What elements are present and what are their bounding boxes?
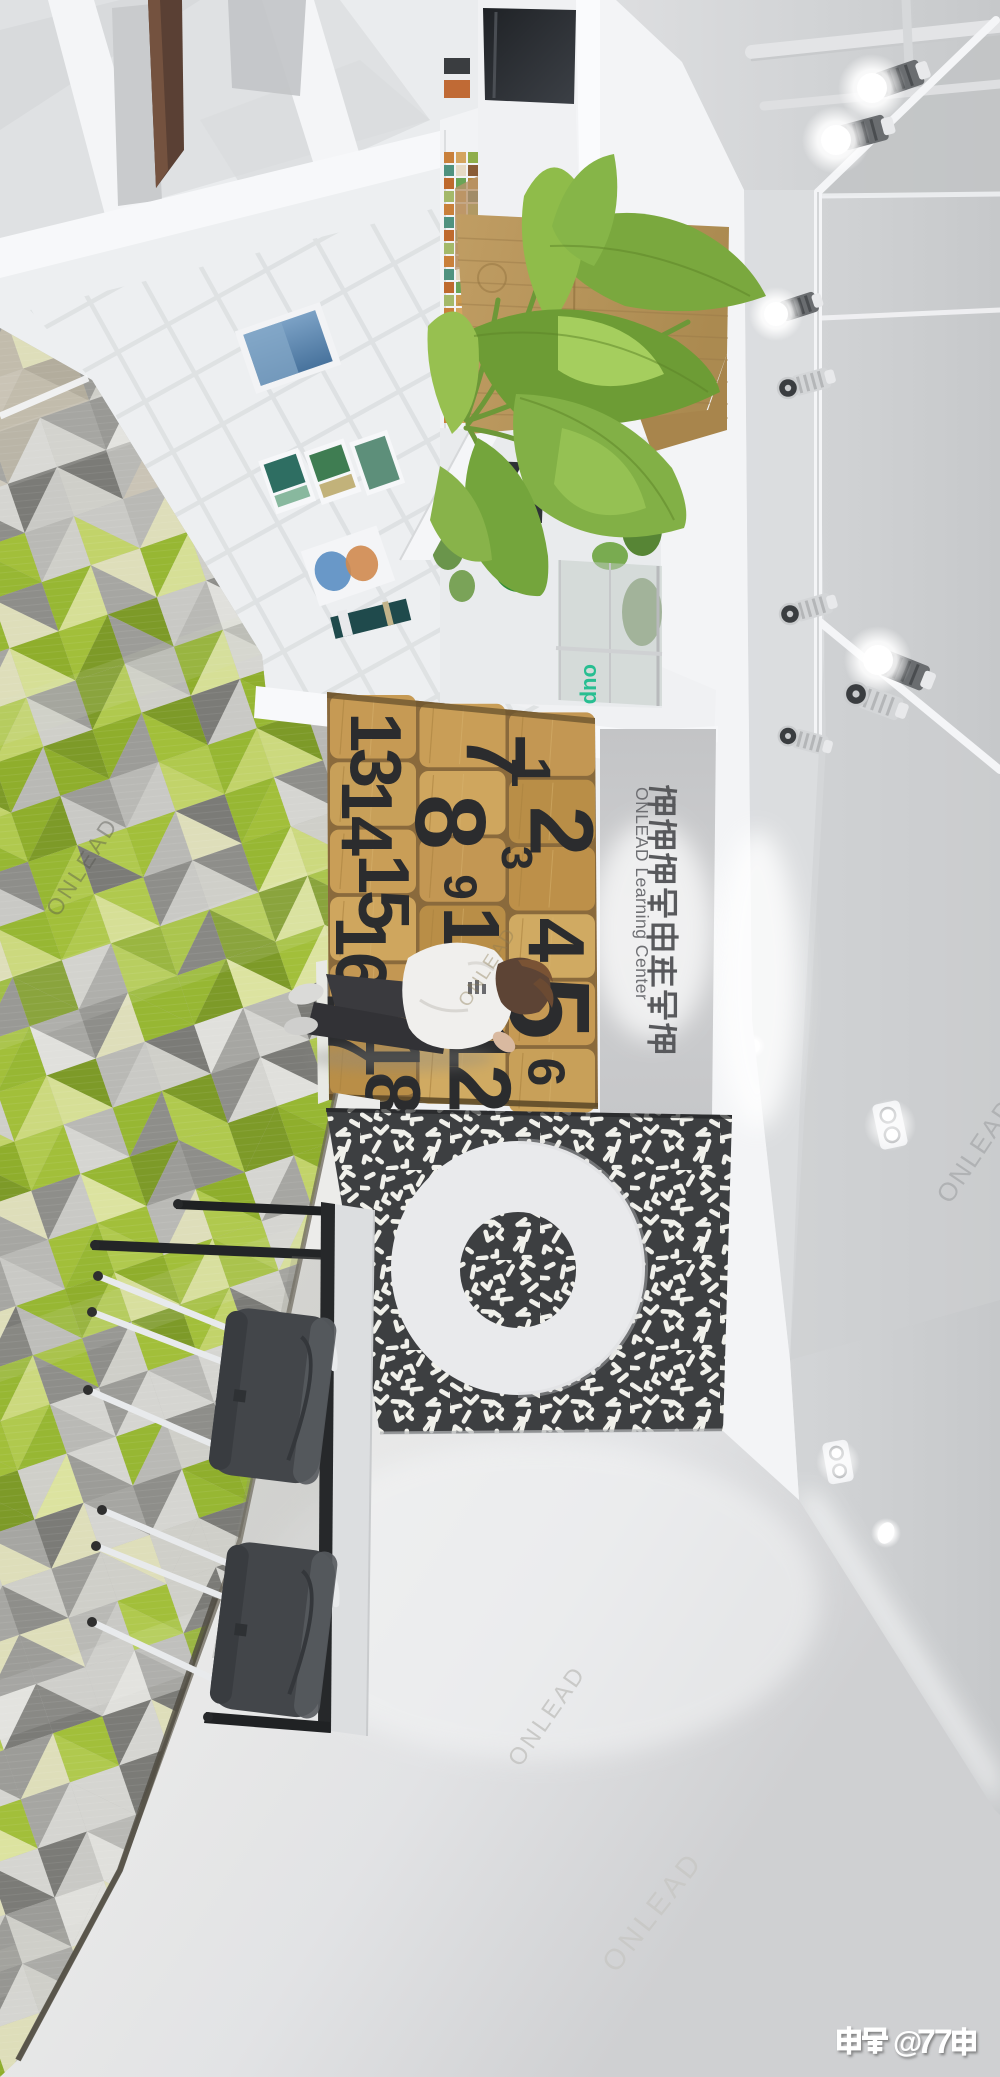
svg-text:8: 8 — [394, 794, 506, 850]
svg-text:oup: oup — [579, 664, 604, 704]
svg-text:9: 9 — [434, 874, 486, 900]
svg-text:13: 13 — [335, 712, 415, 786]
svg-text:4: 4 — [512, 918, 601, 963]
svg-text:77: 77 — [917, 2023, 952, 2061]
svg-text:14: 14 — [326, 780, 406, 856]
svg-text:7: 7 — [449, 734, 543, 781]
svg-text:ONLEAD Learning Center: ONLEAD Learning Center — [632, 787, 652, 1000]
